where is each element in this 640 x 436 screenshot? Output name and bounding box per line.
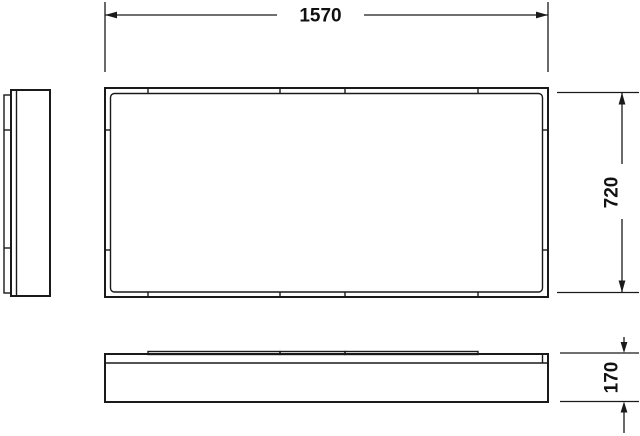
front-view-body [105, 354, 548, 402]
top-view-outer-frame [105, 88, 548, 297]
arrowhead-up [619, 93, 626, 105]
arrowhead-down [621, 342, 628, 353]
arrowhead-up [621, 402, 628, 413]
dimension-drawing: 1570 720 170 [0, 0, 640, 436]
arrowhead-left [105, 12, 117, 19]
side-view [4, 90, 50, 296]
dimension-width-label: 1570 [299, 6, 341, 27]
dimension-height-label: 170 [602, 362, 623, 394]
top-view [105, 88, 548, 297]
front-view [105, 352, 548, 403]
side-view-flange [4, 95, 11, 293]
dimension-depth-label: 720 [602, 177, 623, 209]
arrowhead-right [536, 12, 548, 19]
dimension-height: 170 [560, 337, 639, 433]
dimension-width: 1570 [105, 2, 548, 72]
technical-drawing-canvas: 1570 720 170 [0, 0, 640, 436]
dimension-depth: 720 [557, 93, 639, 293]
arrowhead-down [619, 281, 626, 293]
top-view-inner-panel [111, 94, 543, 293]
